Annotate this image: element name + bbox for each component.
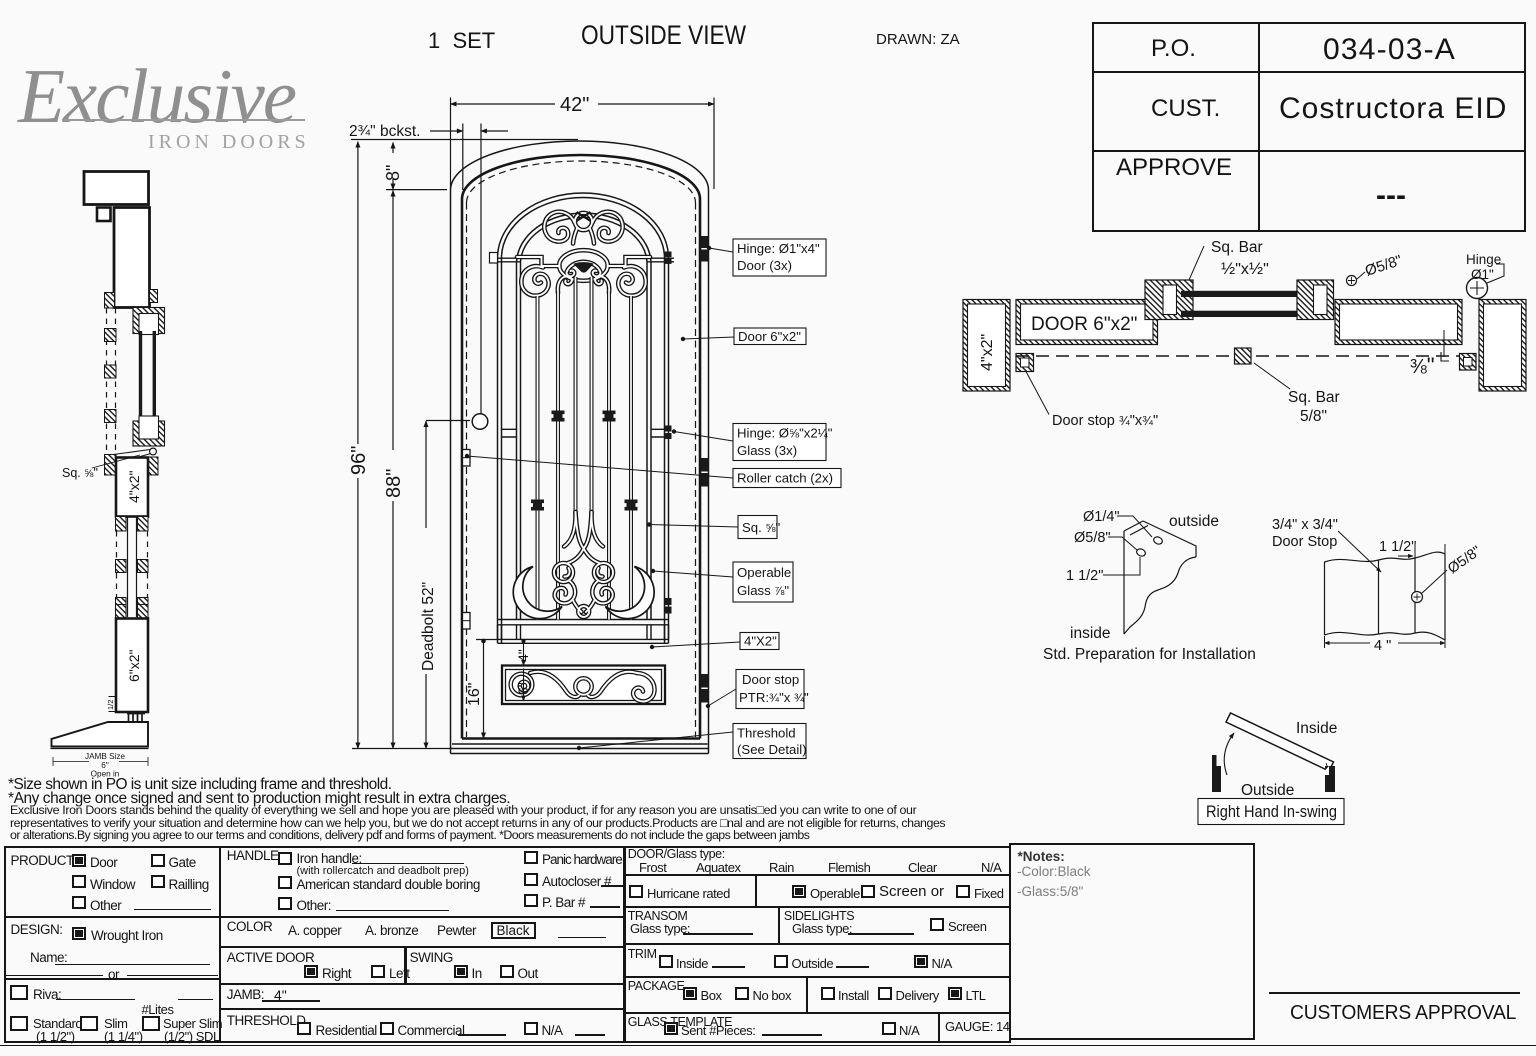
svg-text:1 1/2": 1 1/2" xyxy=(1066,568,1103,584)
svg-text:96": 96" xyxy=(348,446,370,475)
svg-text:4 ": 4 " xyxy=(1374,638,1391,654)
svg-text:4": 4" xyxy=(515,649,531,662)
svg-text:Door stop: Door stop xyxy=(742,672,799,687)
svg-text:½"x½": ½"x½" xyxy=(1221,259,1269,278)
svg-text:1/2: 1/2 xyxy=(106,700,115,710)
svg-text:Sq. ⅝": Sq. ⅝" xyxy=(742,520,780,535)
svg-text:2¾" bckst.: 2¾" bckst. xyxy=(349,122,420,140)
svg-text:Threshold: Threshold xyxy=(737,726,796,741)
svg-text:Std. Preparation for Installat: Std. Preparation for Installation xyxy=(1043,646,1256,663)
svg-text:5/8": 5/8" xyxy=(1300,408,1327,425)
svg-text:⅜": ⅜" xyxy=(1410,353,1435,378)
svg-text:Deadbolt 52": Deadbolt 52" xyxy=(420,582,437,671)
svg-text:Roller catch (2x): Roller catch (2x) xyxy=(737,471,833,486)
svg-text:Door (3x): Door (3x) xyxy=(737,258,792,273)
svg-text:Operable: Operable xyxy=(737,565,791,580)
svg-text:1 1/2": 1 1/2" xyxy=(1379,539,1416,555)
svg-text:JAMB Size: JAMB Size xyxy=(85,752,125,761)
svg-text:4"x2": 4"x2" xyxy=(979,334,996,371)
svg-text:Ø5/8": Ø5/8" xyxy=(1363,252,1404,280)
svg-text:Ø5/8": Ø5/8" xyxy=(1074,530,1111,546)
svg-text:Right Hand In-swing: Right Hand In-swing xyxy=(1206,803,1337,821)
svg-text:Hinge: Ø1"x4": Hinge: Ø1"x4" xyxy=(737,241,820,256)
svg-text:6": 6" xyxy=(515,682,531,695)
svg-text:6"x2": 6"x2" xyxy=(126,649,142,682)
svg-text:Door 6"x2": Door 6"x2" xyxy=(738,329,801,344)
svg-text:Sq. Bar: Sq. Bar xyxy=(1288,389,1340,406)
svg-text:Outside: Outside xyxy=(1241,782,1294,799)
svg-text:Sq. Bar: Sq. Bar xyxy=(1211,239,1263,256)
svg-text:PTR:¾"x ¾": PTR:¾"x ¾" xyxy=(739,690,809,705)
svg-text:Hinge: Hinge xyxy=(1466,252,1501,267)
svg-text:8": 8" xyxy=(383,165,403,181)
svg-text:Ø5/8": Ø5/8" xyxy=(1445,543,1484,577)
svg-text:4"x2": 4"x2" xyxy=(126,470,142,503)
svg-text:4"X2": 4"X2" xyxy=(744,634,777,649)
svg-text:outside: outside xyxy=(1169,513,1219,530)
svg-text:16": 16" xyxy=(466,683,483,706)
svg-text:inside: inside xyxy=(1070,625,1111,642)
svg-text:Glass ⅞": Glass ⅞" xyxy=(737,583,789,598)
svg-text:88": 88" xyxy=(383,469,405,498)
svg-text:Inside: Inside xyxy=(1296,720,1337,737)
svg-text:42": 42" xyxy=(560,94,589,116)
svg-text:DOOR 6"x2": DOOR 6"x2" xyxy=(1031,314,1137,335)
svg-text:Ø1": Ø1" xyxy=(1471,267,1494,282)
svg-text:Door stop ¾"x¾": Door stop ¾"x¾" xyxy=(1052,413,1158,429)
svg-text:Ø1/4": Ø1/4" xyxy=(1083,509,1120,525)
svg-text:Door Stop: Door Stop xyxy=(1272,534,1337,550)
svg-text:Hinge: Ø⅝"x2¼": Hinge: Ø⅝"x2¼" xyxy=(737,426,833,441)
svg-text:(See Detail): (See Detail) xyxy=(737,742,807,757)
svg-text:3/4" x 3/4": 3/4" x 3/4" xyxy=(1272,517,1338,533)
svg-text:Glass (3x): Glass (3x) xyxy=(737,443,797,458)
